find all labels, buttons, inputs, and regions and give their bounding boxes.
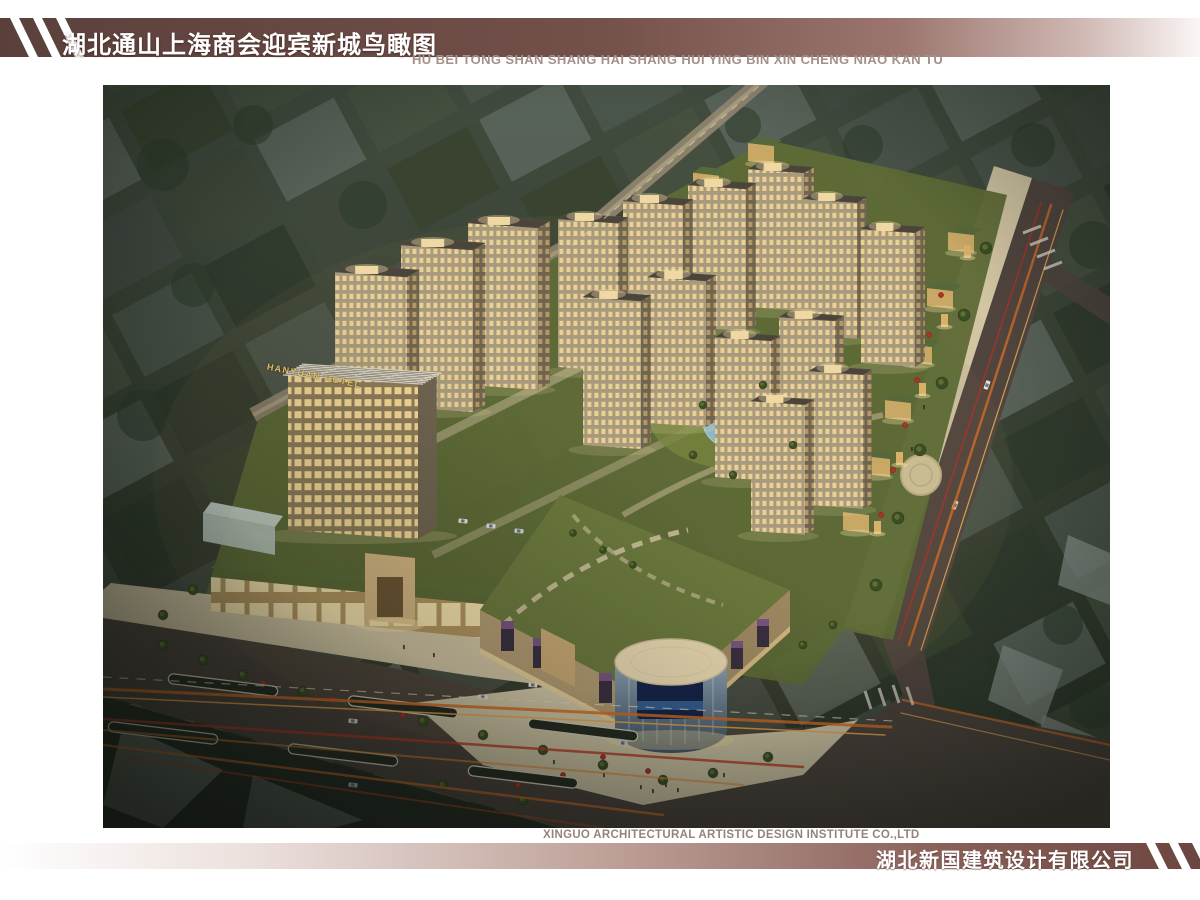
designer-credit-cn: 湖北新国建筑设计有限公司	[876, 844, 1134, 873]
poster-page: 湖北通山上海商会迎宾新城鸟瞰图 HU BEI TONG SHAN SHANG H…	[0, 0, 1200, 900]
poster-title-pinyin: HU BEI TONG SHAN SHANG HAI SHANG HUI YIN…	[412, 52, 943, 67]
aerial-scene-graphic	[103, 85, 1110, 828]
poster-title: 湖北通山上海商会迎宾新城鸟瞰图	[62, 25, 437, 60]
aerial-rendering: HANYUAN HOTEL	[103, 85, 1110, 828]
designer-credit-en: XINGUO ARCHITECTURAL ARTISTIC DESIGN INS…	[543, 829, 920, 841]
